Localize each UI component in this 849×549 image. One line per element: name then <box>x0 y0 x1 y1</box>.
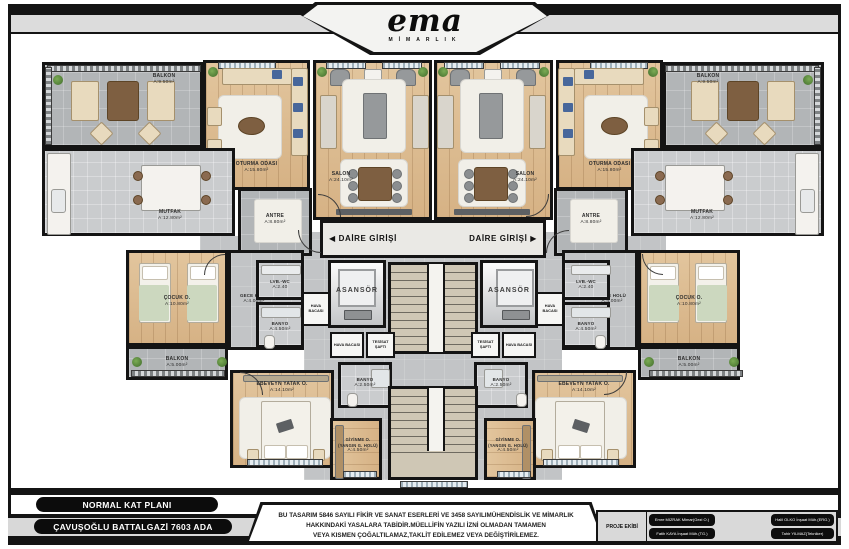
air-shaft-left-side: HAVA BACASI <box>302 292 330 326</box>
room-banyo-kucuk-right: BANYO A:2.50m² <box>474 362 528 408</box>
stair-divider <box>427 264 445 352</box>
plan-title-pill: NORMAL KAT PLANI <box>36 497 218 512</box>
window <box>247 459 323 466</box>
toilet <box>516 393 527 407</box>
room-banyo-right: BANYO A:4.50m² <box>562 302 610 348</box>
elevator-door <box>502 310 530 320</box>
copyright-line: HAKKINDAKİ YASALARA TABİDİR.MÜELLİFİN YA… <box>249 521 603 531</box>
team-grid: Emre MIZRAK Mimar(Gezi O.) Halil OLKO İn… <box>647 512 836 541</box>
air-shaft-left: HAVA BACASI <box>330 332 364 358</box>
cushion-seat <box>137 121 161 145</box>
room-area: A:8.80m² <box>557 220 625 226</box>
room-label: BANYO A:2.50m² <box>477 377 525 389</box>
room-name: BALKON <box>133 73 195 80</box>
balcony-table <box>107 81 139 121</box>
shower <box>261 307 301 318</box>
team-member: Emre MIZRAK Mimar(Gezi O.) <box>649 514 715 526</box>
room-area: A:12.80m² <box>667 216 737 222</box>
cushion <box>272 70 282 79</box>
elevator-door <box>344 310 372 320</box>
cushion-seat <box>704 121 728 145</box>
plant <box>438 67 448 77</box>
sofa <box>412 95 429 149</box>
chair <box>723 195 733 205</box>
window <box>444 62 484 69</box>
room-label: ÇOCUK O. A:10.80m² <box>641 295 737 308</box>
shaft-label: TESİSAT ŞAFTI <box>369 340 392 350</box>
room-label: BALKON A:9.50m² <box>677 73 739 86</box>
toilet <box>264 335 275 349</box>
plant <box>539 67 549 77</box>
room-name: SALON <box>504 171 546 178</box>
project-team-table: PROJE EKİBİ Emre MIZRAK Mimar(Gezi O.) H… <box>596 510 838 543</box>
room-label: ANTRE A:8.80m² <box>241 213 309 226</box>
team-member: Halil OLKO İnşaat Müh.(ERG.) <box>771 514 834 526</box>
team-empty-cell <box>717 528 769 540</box>
room-name: MUTFAK <box>667 209 737 216</box>
dining-chair <box>392 193 402 203</box>
room-label: GİYİNME O. (YANGIN G. HOLÜ) A:4.50m² <box>337 437 379 455</box>
room-area: A:4.50m² <box>337 448 379 454</box>
room-balkon-buyuk-right: BALKON A:9.50m² <box>663 62 824 148</box>
room-label: LVB.-WC A:2.40 <box>565 279 607 291</box>
cushion <box>293 103 303 112</box>
window <box>497 471 531 478</box>
project-title-pill: ÇAVUŞOĞLU BATTALGAZİ 7603 ADA <box>34 519 232 534</box>
shaft-label: HAVA BACASI <box>305 304 327 314</box>
team-header: PROJE EKİBİ <box>598 512 647 541</box>
stair-divider <box>427 388 445 451</box>
logo-badge-inner: ema MİMARLIK <box>303 5 547 52</box>
left-frame-bar <box>8 4 11 544</box>
room-name: SALON <box>320 171 362 178</box>
utility-shaft-right: TESİSAT ŞAFTI <box>471 332 500 358</box>
window <box>326 62 366 69</box>
brand-logo: ema <box>303 6 547 36</box>
room-label: ANTRE A:8.80m² <box>557 213 625 226</box>
room-label: BANYO A:4.50m² <box>565 321 607 333</box>
room-antre-left: ANTRE A:8.80m² <box>238 188 312 256</box>
pillow <box>286 445 308 459</box>
room-name: BALKON <box>677 73 739 80</box>
room-area: A:2.50m² <box>477 383 525 389</box>
plan-bottom-bar <box>8 488 841 495</box>
air-shaft-right: HAVA BACASI <box>502 332 536 358</box>
chair <box>133 171 143 181</box>
lounge-seat <box>767 81 795 121</box>
cushion-seat <box>752 121 776 145</box>
room-label: BANYO A:2.50m² <box>341 377 389 389</box>
room-area: A:4.50m² <box>259 327 301 333</box>
room-name: ÇOCUK O. <box>641 295 737 302</box>
copyright-box-inner: BU TASARIM 5846 SAYILI FİKİR VE SANAT ES… <box>249 505 603 541</box>
room-label: BANYO A:4.50m² <box>259 321 301 333</box>
pillow <box>580 445 602 459</box>
chair <box>655 171 665 181</box>
armchair <box>207 107 222 126</box>
window <box>343 471 377 478</box>
balcony-railing <box>665 65 819 72</box>
window <box>382 62 422 69</box>
room-area: A:4.50m² <box>487 448 529 454</box>
stairwell-upper <box>388 262 478 354</box>
room-giyinme-left: GİYİNME O. (YANGIN G. HOLÜ) A:4.50m² <box>330 418 382 480</box>
entrance-arrow-right-icon: ▶ <box>530 234 537 243</box>
chair <box>201 171 211 181</box>
room-balkon-kucuk-right: BALKON A:5.00m² <box>638 346 740 380</box>
room-giyinme-right: GİYİNME O. (YANGIN G. HOLÜ) A:4.50m² <box>484 418 536 480</box>
tv-unit <box>363 93 387 139</box>
lounge-seat <box>147 81 175 121</box>
entrance-name: DAİRE GİRİŞİ <box>339 234 397 243</box>
tv-unit <box>479 93 503 139</box>
plant <box>53 75 63 85</box>
chair <box>723 171 733 181</box>
kitchen-table <box>141 165 201 211</box>
room-banyo-left: BANYO A:4.50m² <box>256 302 304 348</box>
shaft-label: HAVA BACASI <box>334 343 360 348</box>
kitchen-sink <box>51 189 66 213</box>
air-shaft-right-side: HAVA BACASI <box>536 292 564 326</box>
team-member: Tahir YILMAZ(Tekniker) <box>771 528 834 540</box>
sofa <box>320 95 337 149</box>
cushion <box>293 129 303 138</box>
vanity-counter <box>571 265 611 275</box>
entrance-label-left: ◀ DAİRE GİRİŞİ <box>329 234 397 243</box>
dining-chair <box>464 169 474 179</box>
cushion-seat <box>89 121 113 145</box>
cushion <box>293 77 303 86</box>
entrance-label-right: DAİRE GİRİŞİ ▶ <box>469 234 537 243</box>
utility-shaft-left: TESİSAT ŞAFTI <box>366 332 395 358</box>
plant <box>418 67 428 77</box>
team-empty-cell <box>717 514 769 526</box>
dining-chair <box>464 193 474 203</box>
right-frame-bar <box>838 4 841 544</box>
plan-title: NORMAL KAT PLANI <box>82 500 171 510</box>
dining-chair <box>348 193 358 203</box>
toilet <box>595 335 606 349</box>
room-label: MUTFAK A:12.80m² <box>667 209 737 222</box>
pillow <box>142 266 168 280</box>
shaft-label: HAVA BACASI <box>506 343 532 348</box>
cushion <box>584 70 594 79</box>
room-banyo-kucuk-left: BANYO A:2.50m² <box>338 362 392 408</box>
shaft-label: HAVA BACASI <box>539 304 561 314</box>
plant <box>648 67 658 77</box>
room-area: A:5.00m² <box>129 363 225 369</box>
coffee-table <box>601 117 628 135</box>
vanity-counter <box>261 265 301 275</box>
toilet <box>347 393 358 407</box>
elevator-label: ASANSÖR <box>483 287 535 294</box>
shower <box>571 307 611 318</box>
dining-table <box>358 167 392 201</box>
window <box>500 62 540 69</box>
room-mutfak-right: MUTFAK A:12.80m² <box>631 148 824 236</box>
sofa <box>529 95 546 149</box>
room-label: MUTFAK A:12.80m² <box>135 209 205 222</box>
armchair <box>644 107 659 126</box>
copyright-box: BU TASARIM 5846 SAYILI FİKİR VE SANAT ES… <box>246 502 606 544</box>
room-area: A:5.00m² <box>641 363 737 369</box>
window <box>543 459 619 466</box>
chair <box>133 195 143 205</box>
dining-chair <box>464 181 474 191</box>
room-label: GİYİNME O. (YANGIN G. HOLÜ) A:4.50m² <box>487 437 529 455</box>
room-mutfak-left: MUTFAK A:12.80m² <box>42 148 235 236</box>
balcony-railing <box>47 65 201 72</box>
room-name: MUTFAK <box>135 209 205 216</box>
room-lvb-wc-right: LVB.-WC A:2.40 <box>562 260 610 300</box>
room-area: A:2.50m² <box>341 383 389 389</box>
balcony-railing <box>131 370 225 377</box>
building-entry-steps <box>400 481 468 488</box>
stair-landing <box>391 453 475 477</box>
room-name: ÇOCUK O. <box>129 295 225 302</box>
room-label: BALKON A:5.00m² <box>129 356 225 369</box>
stairwell-lower <box>388 386 478 480</box>
elevator-label: ASANSÖR <box>331 287 383 294</box>
room-balkon-kucuk-left: BALKON A:5.00m² <box>126 346 228 380</box>
floor-plan-sheet: ema MİMARLIK BALKON A:9.50m² <box>0 0 849 549</box>
lounge-seat <box>691 81 719 121</box>
plant <box>803 75 813 85</box>
room-label: BALKON A:9.50m² <box>133 73 195 86</box>
cushion <box>563 77 573 86</box>
team-member: Fatih KAYA İnşaat Müh.(TG.) <box>649 528 715 540</box>
pillow <box>558 445 580 459</box>
room-label: SALON A:24.10m² <box>504 171 546 184</box>
balcony-table <box>727 81 759 121</box>
room-salon-left: SALON A:24.10m² <box>313 60 432 220</box>
room-area: A:2.40 <box>259 285 301 291</box>
balcony-railing <box>814 67 821 145</box>
entrance-arrow-left-icon: ◀ <box>329 234 336 243</box>
brand-subtitle: MİMARLIK <box>303 37 547 43</box>
room-area: A:9.50m² <box>677 80 739 86</box>
copyright-line: VEYA KISMEN ÇOĞALTILAMAZ,TAKLİT EDİLEMEZ… <box>249 531 603 541</box>
logo-badge: ema MİMARLIK <box>300 2 550 55</box>
kitchen-table <box>665 165 725 211</box>
dining-chair <box>392 169 402 179</box>
copyright-line: BU TASARIM 5846 SAYILI FİKİR VE SANAT ES… <box>249 511 603 521</box>
kitchen-sink <box>800 189 815 213</box>
pillow <box>698 266 724 280</box>
room-area: A:4.50m² <box>565 327 607 333</box>
elevator-left: ASANSÖR <box>328 260 386 328</box>
room-balkon-buyuk-left: BALKON A:9.50m² <box>42 62 203 148</box>
entrance-corridor: ◀ DAİRE GİRİŞİ DAİRE GİRİŞİ ▶ <box>320 220 546 258</box>
room-name: BALKON <box>129 356 225 363</box>
room-area: A:24.10m² <box>320 178 362 184</box>
cushion <box>563 103 573 112</box>
balcony-railing <box>649 370 743 377</box>
balcony-railing <box>45 67 52 145</box>
coffee-table <box>238 117 265 135</box>
room-area: A:10.80m² <box>641 302 737 308</box>
lounge-seat <box>71 81 99 121</box>
sofa <box>437 95 454 149</box>
room-label: BALKON A:5.00m² <box>641 356 737 369</box>
tv-band <box>336 209 412 215</box>
room-area: A:10.80m² <box>129 302 225 308</box>
project-title: ÇAVUŞOĞLU BATTALGAZİ 7603 ADA <box>53 522 213 532</box>
plant <box>317 67 327 77</box>
cushion <box>563 129 573 138</box>
elevator-right: ASANSÖR <box>480 260 538 328</box>
dining-chair <box>392 181 402 191</box>
room-area: A:8.80m² <box>241 220 309 226</box>
dining-table <box>474 167 508 201</box>
pillow <box>264 445 286 459</box>
room-label: ÇOCUK O. A:10.80m² <box>129 295 225 308</box>
room-name: ANTRE <box>241 213 309 220</box>
room-label: LVB.-WC A:2.40 <box>259 279 301 291</box>
room-area: A:12.80m² <box>135 216 205 222</box>
room-lvb-wc-left: LVB.-WC A:2.40 <box>256 260 304 300</box>
room-label: SALON A:24.10m² <box>320 171 362 184</box>
room-area: A:9.50m² <box>133 80 195 86</box>
room-name: ANTRE <box>557 213 625 220</box>
chair <box>201 195 211 205</box>
room-name: BALKON <box>641 356 737 363</box>
room-area: A:2.40 <box>565 285 607 291</box>
room-area: A:24.10m² <box>504 178 546 184</box>
tv-band <box>454 209 530 215</box>
shaft-label: TESİSAT ŞAFTI <box>474 340 497 350</box>
chair <box>655 195 665 205</box>
dining-chair <box>508 193 518 203</box>
plant <box>208 67 218 77</box>
entrance-name: DAİRE GİRİŞİ <box>469 234 527 243</box>
